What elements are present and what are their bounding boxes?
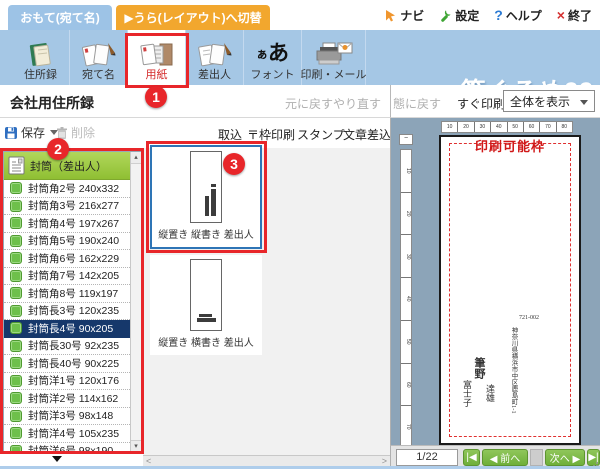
paper-type-icon [10,200,22,212]
sender-family-name: 筆野 [471,357,487,379]
ruler-tick: 60 [401,363,411,406]
list-header-envelope-sender[interactable]: 封筒（差出人） [4,152,130,180]
paper-type-icon [10,445,22,452]
sender-address: 神奈川県横浜市中区鹿島町1-1 [508,327,518,419]
exit-button[interactable]: × 終了 [557,7,592,24]
layout-option-vertical-writing[interactable]: 縦置き 縦書き 差出人 [150,145,262,249]
toolbar-label-sender: 差出人 [198,69,231,82]
toolbar-label-recipient: 宛て名 [82,69,115,82]
toolbar-label-font: フォント [251,69,295,82]
cursor-icon [384,9,397,22]
annotation-step-3: 3 [223,153,245,175]
toolbar-recipient[interactable]: 宛て名 [70,30,128,85]
horizontal-scrollbar[interactable]: < > [143,455,390,466]
toolbar-label-print-mail: 印刷・メール [301,69,367,82]
ruler-tick: 10 [442,122,457,132]
envelope-preview: 印刷可能枠 721-002 神奈川県横浜市中区鹿島町1-1 筆野 達雄 富士子 [439,135,581,445]
ruler-tick: 40 [401,277,411,320]
redo-button[interactable]: やり直す [333,95,381,112]
paper-size-item[interactable]: 封筒角5号 190x240 [4,233,130,251]
paper-size-label: 封筒長40号 90x225 [28,356,119,371]
floppy-disk-icon [4,126,18,140]
ruler-tick: 50 [401,320,411,363]
toolbar-address-book[interactable]: 住所録 [12,30,70,85]
tab-switch-to-back-layout[interactable]: ▶うら(レイアウト)へ切替 [116,5,270,30]
sender-postal-code: 721-002 [519,315,539,321]
vertical-ruler: 10203040506070 [400,149,412,449]
paper-type-icon [10,235,22,247]
delete-label: 削除 [71,124,95,141]
paper-size-item[interactable]: 封筒長30号 92x235 [4,338,130,356]
postal-frame-print-button[interactable]: 〒枠印刷 [247,126,295,143]
toolbar-sender[interactable]: 差出人 [186,30,244,85]
save-label: 保存 [21,124,45,141]
tab-front-address[interactable]: おもて(宛て名) [8,5,112,30]
pager-splitter[interactable] [530,449,543,466]
toolbar-print-mail[interactable]: 印刷・メール [302,30,366,85]
list-scrollbar[interactable]: ▴ ▾ [130,152,141,452]
ruler-tick: 70 [539,122,555,132]
view-mode-select[interactable]: 全体を表示 [503,90,595,112]
paper-size-item[interactable]: 封筒角7号 142x205 [4,268,130,286]
paper-type-icon [10,287,22,299]
paper-size-item[interactable]: 封筒角2号 240x332 [4,180,130,198]
next-page-button[interactable]: 次へ ▶ [545,449,585,466]
paper-type-icon [10,375,22,387]
paper-size-label: 封筒角3号 216x277 [28,198,119,213]
chevron-down-icon [580,100,588,105]
navi-button[interactable]: ナビ [384,7,424,24]
wrench-icon [439,9,452,22]
paper-size-item[interactable]: 封筒洋3号 98x148 [4,408,130,426]
paper-size-label: 封筒角8号 119x197 [28,286,118,301]
ruler-tick: 80 [556,122,572,132]
previous-page-button[interactable]: ◀ 前へ [482,449,528,466]
paper-size-label: 封筒角4号 197x267 [28,216,119,231]
paper-size-item[interactable]: 封筒角8号 119x197 [4,285,130,303]
page-title: 会社用住所録 [10,93,94,113]
paper-type-icon [10,252,22,264]
ruler-tick: 60 [523,122,539,132]
paper-size-label: 封筒角7号 142x205 [28,268,119,283]
paper-size-item[interactable]: 封筒長3号 120x235 [4,303,130,321]
paper-size-item[interactable]: 封筒角6号 162x229 [4,250,130,268]
envelope-thumbnail-horizontal [190,259,222,331]
settings-label: 設定 [455,7,479,24]
envelope-icon [8,156,25,175]
paper-size-label: 封筒長30号 92x235 [28,338,119,353]
view-mode-value: 全体を表示 [510,93,570,110]
paper-size-label: 封筒角5号 190x240 [28,233,119,248]
paper-size-label: 封筒洋1号 120x176 [28,373,119,388]
paper-size-item[interactable]: 封筒長40号 90x225 [4,355,130,373]
quick-print-button[interactable]: すぐ印刷 [457,95,505,112]
paper-type-icon [10,217,22,229]
scroll-right-icon[interactable]: > [382,456,387,466]
paper-size-item[interactable]: 封筒洋2号 114x162 [4,390,130,408]
navi-label: ナビ [400,7,424,24]
annotation-step-1: 1 [145,86,167,108]
paper-icon [139,37,175,69]
toolbar-paper[interactable]: 用紙 [128,30,186,85]
print-preview-panel: − 1020304050607080 10203040506070 印刷可能枠 … [390,118,600,445]
sender-cards-icon [197,37,233,69]
paper-size-label: 封筒長3号 120x235 [28,303,119,318]
settings-button[interactable]: 設定 [439,7,479,24]
save-button[interactable]: 保存 [4,124,58,141]
paper-size-item[interactable]: 封筒長4号 90x205 [4,320,130,338]
text-merge-button[interactable]: 文章差込 [343,126,391,143]
paper-size-item[interactable]: 封筒洋6号 98x190 [4,443,130,453]
font-icon: ぁあ [256,37,289,69]
page-indicator: 1/22 [396,449,458,466]
stamp-button[interactable]: スタンプ [297,126,345,143]
printer-mail-icon [314,37,354,69]
ruler-tick: 40 [490,122,506,132]
main-toolbar: 住所録 宛て名 用紙 差出人 ぁあ フォント [0,30,600,85]
scroll-left-icon[interactable]: < [146,456,151,466]
paper-size-item[interactable]: 封筒洋4号 105x235 [4,425,130,443]
paper-type-icon [10,340,22,352]
restore-state-button-truncated[interactable]: 態に戻す [393,95,449,112]
first-page-button[interactable]: |◀ [463,449,480,466]
paper-size-list: 封筒（差出人） 封筒角2号 240x332封筒角3号 216x277封筒角4号 … [4,152,130,452]
paper-size-label: 封筒洋4号 105x235 [28,426,119,441]
paper-type-icon [10,322,22,334]
annotation-step-2: 2 [47,138,69,160]
undo-button[interactable]: 元に戻す [285,95,333,112]
list-header-label: 封筒（差出人） [30,158,107,174]
paper-size-label: 封筒長4号 90x205 [28,321,113,336]
paper-size-label: 封筒洋3号 98x148 [28,408,113,423]
printable-area-label: 印刷可能枠 [475,136,545,155]
help-button[interactable]: ? ヘルプ [494,7,542,24]
paper-size-label: 封筒角2号 240x332 [28,181,119,196]
import-button[interactable]: 取込 [218,126,242,143]
paper-size-listbox: 封筒（差出人） 封筒角2号 240x332封筒角3号 216x277封筒角4号 … [3,151,142,453]
preview-header: 態に戻す すぐ印刷 全体を表示 [390,85,600,118]
ruler-tick: 30 [401,234,411,277]
paper-type-icon [10,270,22,282]
paper-type-icon [10,427,22,439]
envelope-thumbnail-vertical [190,151,222,223]
horizontal-ruler: 1020304050607080 [441,121,573,133]
paper-size-label: 封筒洋2号 114x162 [28,391,118,406]
paper-size-label: 封筒洋6号 98x190 [28,443,113,452]
sender-given-name-2: 富士子 [461,380,474,407]
scroll-up-icon[interactable]: ▴ [131,152,141,164]
paper-type-icon [10,182,22,194]
list-more-below-icon[interactable] [52,456,62,462]
help-label: ヘルプ [506,7,542,24]
address-book-icon [24,37,58,69]
ruler-tick: 50 [507,122,523,132]
ruler-tick: 20 [401,192,411,235]
toolbar-font[interactable]: ぁあ フォント [244,30,302,85]
ruler-tick: 10 [401,150,411,192]
paper-type-icon [10,410,22,422]
question-icon: ? [494,7,503,23]
recipient-cards-icon [81,37,117,69]
ruler-tick: 70 [401,405,411,448]
scroll-down-icon[interactable]: ▾ [131,440,141,452]
exit-label: 終了 [568,7,592,24]
close-icon: × [557,7,565,23]
paper-type-icon [10,392,22,404]
paper-type-icon [10,357,22,369]
window-actions: ナビ 設定 ? ヘルプ × 終了 [384,0,592,30]
top-tab-bar: おもて(宛て名) ▶うら(レイアウト)へ切替 ナビ 設定 ? ヘルプ × 終了 [0,0,600,30]
toolbar-label-paper: 用紙 [146,69,168,82]
paper-size-item[interactable]: 封筒角3号 216x277 [4,198,130,216]
paper-type-icon [10,305,22,317]
layout-option-label: 縦置き 横書き 差出人 [150,334,262,349]
paper-size-label: 封筒角6号 162x229 [28,251,119,266]
paper-size-item[interactable]: 封筒洋1号 120x176 [4,373,130,391]
ruler-corner: − [399,134,413,145]
toolbar-label-address-book: 住所録 [24,69,57,82]
paper-size-item[interactable]: 封筒角4号 197x267 [4,215,130,233]
fudegurume-window: おもて(宛て名) ▶うら(レイアウト)へ切替 ナビ 設定 ? ヘルプ × 終了 [0,0,600,469]
layout-option-label: 縦置き 縦書き 差出人 [152,226,260,241]
ruler-tick: 30 [474,122,490,132]
ruler-tick: 20 [457,122,473,132]
layout-option-horizontal-writing[interactable]: 縦置き 横書き 差出人 [150,255,262,355]
document-title-row: 会社用住所録 元に戻す やり直す [0,85,390,118]
sender-given-name-1: 達雄 [484,384,497,402]
